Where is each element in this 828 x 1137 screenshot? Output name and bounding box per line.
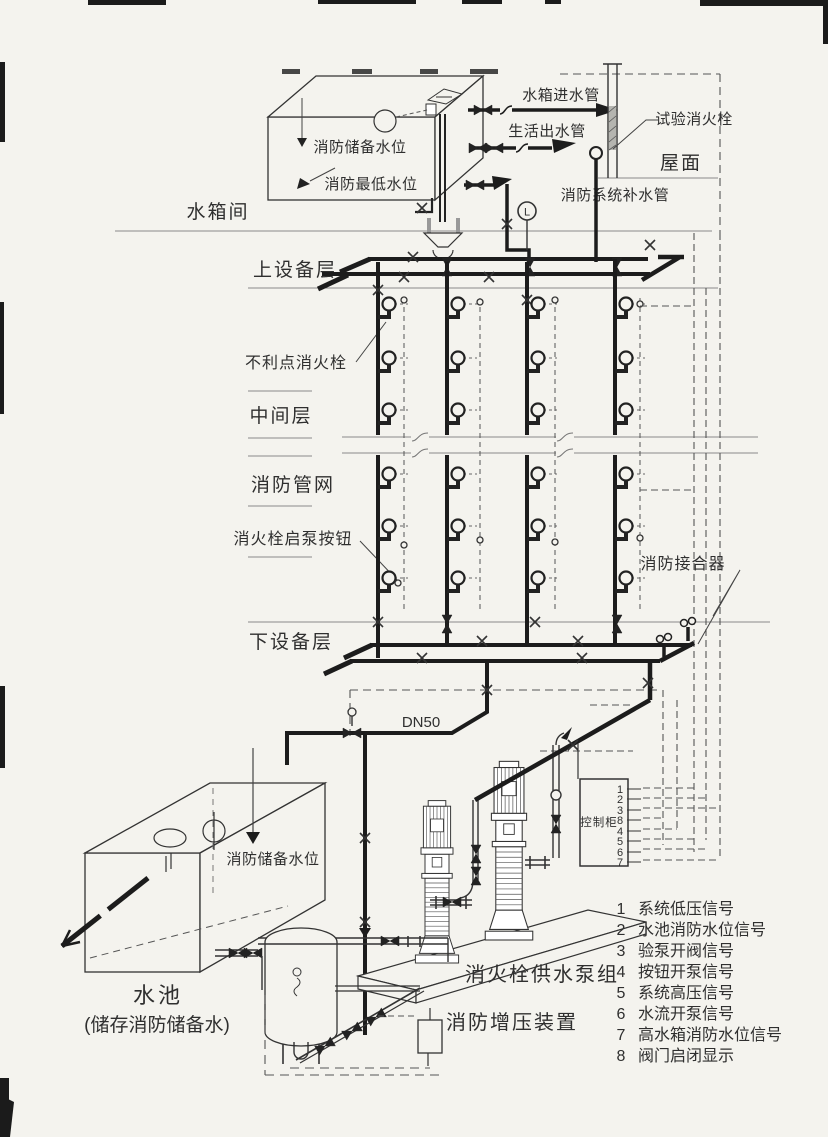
- siamese-connection-label: 消防接合器: [640, 555, 725, 573]
- scanned-diagram-page: 消防储备水位 消防最低水位 水箱进水管 生活出水管 L 消防系统补水管: [0, 0, 828, 1137]
- legend-text: 高水箱消防水位信号: [638, 1026, 782, 1044]
- legend-num: 3: [617, 943, 626, 960]
- button-signal-lines: [404, 298, 640, 612]
- legend-num: 5: [617, 985, 626, 1002]
- level-gauge-letter: L: [524, 207, 530, 219]
- tank-inlet-label: 水箱进水管: [522, 87, 600, 104]
- middle-floor-label: 中间层: [249, 405, 312, 427]
- legend-num: 4: [617, 964, 626, 981]
- control-cabinet-label: 控制柜: [580, 815, 618, 829]
- lower-equipment-label: 下设备层: [249, 631, 333, 653]
- cabinet-port: 7: [617, 857, 623, 869]
- pool-label: 水池: [133, 983, 183, 1008]
- upper-equipment-label: 上设备层: [253, 259, 337, 281]
- pressurization-label: 消防增压装置: [446, 1011, 578, 1034]
- legend: 1 系统低压信号 2 水池消防水位信号 3 验泵开阀信号 4 按钮开泵信号 5 …: [617, 900, 782, 1065]
- makeup-pipe-label: 消防系统补水管: [561, 187, 670, 204]
- pump-button-label: 消火栓启泵按钮: [233, 530, 352, 548]
- tank-lowest-level-label: 消防最低水位: [324, 176, 417, 193]
- floor-labels: 水箱间 上设备层 中间层 消防管网 消火栓启泵按钮 下设备层 不利点消火栓: [186, 201, 398, 653]
- legend-text: 水流开泵信号: [638, 1005, 734, 1023]
- start-buttons: [395, 297, 643, 586]
- pump-group-label: 消火栓供水泵组: [465, 963, 619, 986]
- domestic-outlet-label: 生活出水管: [508, 123, 586, 140]
- tank-outlet-pipes: 水箱进水管 生活出水管 L 消防系统补水管: [464, 87, 669, 262]
- roof-label: 屋面: [660, 153, 702, 174]
- tank-room-label: 水箱间: [186, 201, 249, 223]
- control-cabinet-group: 控制柜 1 2 3 8 4 5 6 7: [578, 743, 641, 869]
- dn50-label: DN50: [402, 714, 440, 731]
- upper-manifold: [318, 240, 684, 289]
- hydrants: [378, 298, 645, 592]
- signal-ladder: [540, 233, 720, 860]
- legend-text: 水池消防水位信号: [638, 921, 766, 939]
- test-hydrant-label: 试验消火栓: [655, 111, 733, 128]
- fire-system-schematic: 消防储备水位 消防最低水位 水箱进水管 生活出水管 L 消防系统补水管: [0, 0, 828, 1137]
- upper-tank-group: 消防储备水位 消防最低水位: [268, 76, 483, 259]
- legend-text: 系统低压信号: [638, 900, 734, 918]
- legend-text: 按钮开泵信号: [638, 963, 734, 981]
- pipe-network-label: 消防管网: [251, 474, 335, 496]
- legend-num: 7: [617, 1027, 626, 1044]
- legend-num: 2: [617, 922, 626, 939]
- legend-text: 验泵开阀信号: [638, 942, 734, 960]
- legend-num: 6: [617, 1006, 626, 1023]
- floor-break-marks: [411, 431, 574, 459]
- float-ball: [374, 110, 396, 132]
- legend-num: 1: [617, 901, 626, 918]
- accessory-box: [418, 1020, 442, 1053]
- legend-num: 8: [617, 1048, 626, 1065]
- cabinet-ports: 1 2 3 8 4 5 6 7: [617, 784, 623, 869]
- legend-text: 阀门启闭显示: [638, 1047, 734, 1065]
- pool-level-label: 消防储备水位: [226, 851, 319, 868]
- tank-reserve-level-label: 消防储备水位: [313, 139, 406, 156]
- unfavorable-hydrant-label: 不利点消火栓: [245, 354, 347, 372]
- pool-group: 消防储备水位 水池 (储存消防储备水): [62, 748, 325, 1036]
- pool-note-label: (储存消防储备水): [84, 1014, 230, 1036]
- legend-text: 系统高压信号: [638, 984, 734, 1002]
- test-hydrant-outlet: [590, 147, 602, 159]
